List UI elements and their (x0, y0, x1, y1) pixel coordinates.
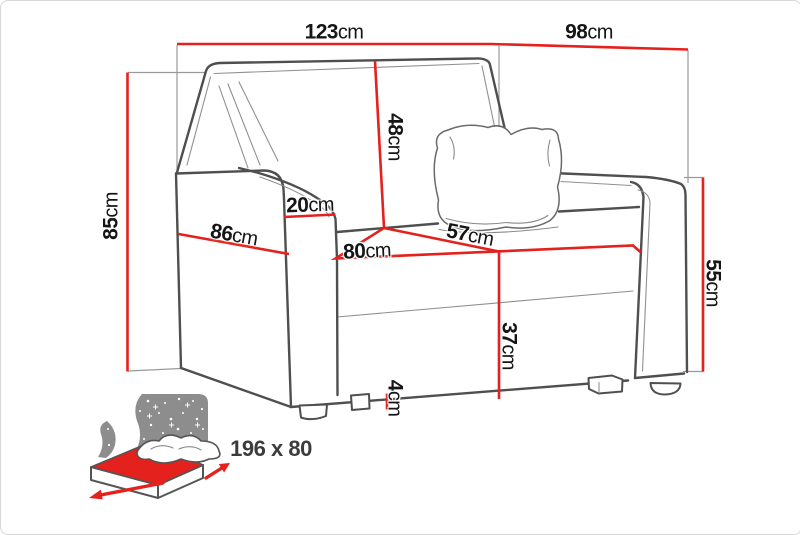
dim-label-leg-height: 4cm (385, 380, 406, 417)
dim-label-top-depth: 98cm (565, 22, 613, 43)
sofa-diagram-canvas (1, 1, 800, 534)
dim-value: 4 (384, 380, 407, 391)
pillow (434, 125, 561, 232)
dim-label-seat-height: 37cm (499, 322, 520, 370)
dim-unit: cm (384, 135, 406, 160)
dim-unit: cm (702, 281, 724, 306)
dim-unit: cm (466, 224, 495, 250)
dim-value: 98 (565, 21, 587, 44)
dim-label-armrest-height: 55cm (703, 259, 724, 307)
dim-label-seat-width: 80cm (343, 239, 392, 262)
dim-value: 85 (100, 218, 123, 240)
bed-size-label: 196 x 80 (230, 436, 312, 462)
dim-line-98 (491, 44, 688, 50)
dim-label-backrest-height: 48cm (385, 113, 406, 161)
dim-unit: cm (587, 22, 612, 44)
product-dimension-diagram: 123cm 98cm 85cm 48cm 20cm 86cm 80cm 57cm… (0, 0, 800, 535)
dim-unit: cm (384, 391, 406, 416)
dim-label-armrest-width: 20cm (286, 194, 334, 217)
dim-unit: cm (308, 194, 334, 217)
dim-unit: cm (338, 22, 363, 44)
dim-unit: cm (101, 192, 123, 217)
dim-value: 123 (305, 21, 338, 44)
dim-unit: cm (498, 344, 520, 369)
dim-label-top-width: 123cm (305, 22, 364, 43)
dim-value: 20 (286, 194, 309, 218)
dim-value: 55 (702, 259, 725, 281)
sofa-bed-icon (89, 394, 230, 499)
dim-label-total-height: 85cm (101, 192, 122, 240)
dim-unit: cm (365, 239, 392, 262)
dim-value: 48 (384, 113, 407, 135)
dim-unit: cm (230, 224, 259, 250)
dim-value: 80 (343, 240, 366, 264)
dim-value: 37 (498, 322, 521, 344)
